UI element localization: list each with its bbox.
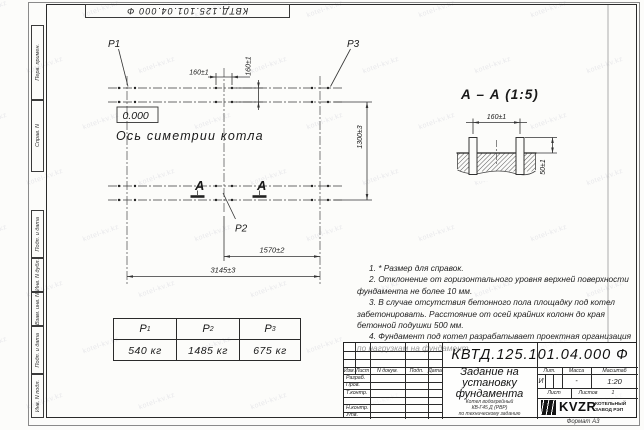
plan-centerlines bbox=[108, 68, 342, 284]
tb-grid bbox=[545, 374, 546, 388]
dim-3145-label: 3145±3 bbox=[211, 266, 237, 275]
drawing-sheet: kotel-kv.kzkotel-kv.kzkotel-kv.kzkotel-k… bbox=[0, 0, 644, 430]
section-view: А – А (1:5) bbox=[442, 87, 558, 181]
mass-label: Масса bbox=[562, 367, 591, 374]
sheets-value: 1 bbox=[604, 388, 622, 398]
note-item: 2. Отклонение от горизонтального уровня … bbox=[357, 274, 639, 297]
kvzr-logo-icon bbox=[541, 400, 556, 415]
section-mark-left: А bbox=[194, 178, 204, 193]
doc-title: Задание на установку фундамента bbox=[443, 368, 536, 398]
load-table-header: P2 bbox=[177, 319, 239, 339]
section-dim-50 bbox=[525, 138, 557, 154]
dim-height-1300 bbox=[334, 102, 372, 200]
dim-bolt-h-label: 160±1 bbox=[189, 70, 209, 77]
format-label: Формат А3 bbox=[558, 419, 608, 425]
dim-total-3145 bbox=[127, 275, 320, 278]
load-table-value: 1485 кг bbox=[177, 340, 239, 361]
tb-grid bbox=[344, 351, 442, 352]
anchor-points bbox=[118, 87, 329, 201]
kvzr-logo-text: KVZR bbox=[559, 399, 596, 414]
p3-label: P3 bbox=[347, 39, 360, 50]
role-nkontr: Н.контр. bbox=[346, 404, 372, 412]
dim-1300-label: 1300±3 bbox=[357, 125, 364, 148]
role-utv: Утв. bbox=[346, 412, 372, 420]
rev-col-izm: Изм. bbox=[344, 367, 355, 374]
scale-value: 1:20 bbox=[591, 374, 638, 388]
section-mark-right: А bbox=[256, 178, 266, 193]
elevation-value: 0.000 bbox=[123, 110, 149, 122]
axis-caption: Ось симетрии котла bbox=[116, 129, 264, 143]
dim-bolt-spacing-v bbox=[236, 80, 263, 110]
company-name: КОТЕЛЬНЫЙ ЗАВОД РЭП bbox=[595, 402, 626, 414]
load-table-header: P3 bbox=[240, 319, 300, 339]
section-dim-50-label: 50±1 bbox=[540, 159, 547, 175]
rev-col-list: Лист bbox=[355, 367, 370, 374]
sheets-label: Листов bbox=[573, 388, 603, 398]
doc-number: КВТД.125.101.04.000 Ф bbox=[442, 343, 638, 367]
lit-value: И bbox=[537, 374, 545, 388]
load-table-value: 675 кг bbox=[240, 340, 300, 361]
rev-col-data: Дата bbox=[428, 367, 442, 374]
p1-label: P1 bbox=[108, 39, 120, 50]
sheet-label: Лист bbox=[537, 388, 571, 398]
rev-col-podp: Подп. bbox=[405, 367, 428, 374]
lit-label: Лит. bbox=[537, 367, 562, 374]
notes-block: 1. * Размер для справок. 2. Отклонение о… bbox=[357, 263, 639, 354]
rev-col-doc: N докум. bbox=[370, 367, 405, 374]
role-prov: Пров. bbox=[346, 382, 372, 390]
load-table-value: 540 кг bbox=[114, 340, 176, 361]
role-tkontr: Т.контр. bbox=[346, 389, 372, 397]
section-dim-160-label: 160±1 bbox=[487, 114, 507, 121]
tb-grid bbox=[553, 374, 554, 388]
load-table-header: P1 bbox=[114, 319, 176, 339]
dim-bolt-spacing-h bbox=[208, 73, 250, 85]
dim-bolt-v-label: 160±1 bbox=[246, 56, 253, 76]
note-item: 1. * Размер для справок. bbox=[357, 263, 639, 274]
title-block: КВТД.125.101.04.000 Ф Изм. Лист N докум.… bbox=[343, 342, 637, 418]
tb-grid bbox=[344, 359, 442, 360]
mass-value: - bbox=[562, 374, 591, 388]
role-razrab: Разраб. bbox=[346, 374, 372, 382]
role-empty bbox=[346, 397, 372, 405]
section-title: А – А (1:5) bbox=[460, 87, 539, 102]
scale-label: Масштаб bbox=[591, 367, 638, 374]
tb-grid bbox=[571, 388, 572, 398]
load-table: P1 P2 P3 540 кг 1485 кг 675 кг bbox=[113, 318, 301, 361]
doc-subtitle: Котел водогрейный КВ-Г45 Д (РВР) по техн… bbox=[443, 399, 536, 417]
p2-label: P2 bbox=[235, 224, 248, 235]
dim-1570-label: 1570±2 bbox=[260, 246, 286, 255]
plan-view: 160±1 160±1 1300±3 bbox=[108, 39, 372, 284]
note-item: 3. В случае отсутствия бетонного пола пл… bbox=[357, 297, 639, 331]
